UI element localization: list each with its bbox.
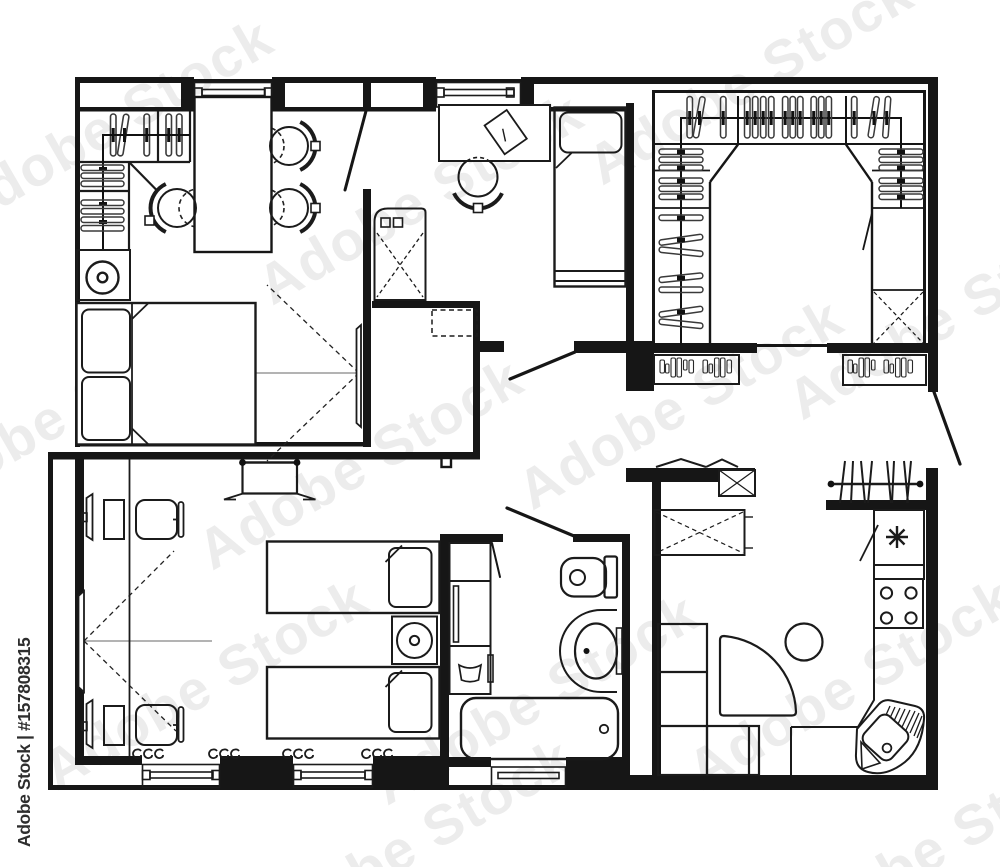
svg-text:Adobe Stock | #157808315: Adobe Stock | #157808315 — [14, 637, 34, 847]
